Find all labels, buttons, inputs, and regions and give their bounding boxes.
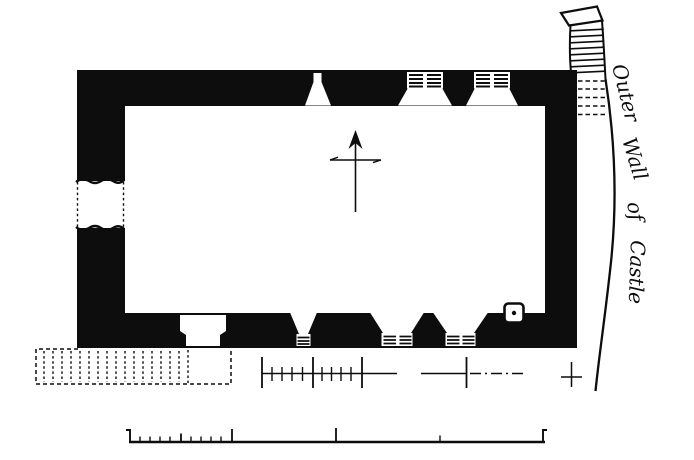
castle-wall-curve (596, 79, 615, 391)
survey-dimension-line (262, 357, 582, 388)
scale-bar-right-end (543, 430, 547, 442)
small-wall-recess (505, 304, 524, 323)
survey-cross-mark (561, 362, 582, 387)
scale-bar-major-ticks (181, 428, 336, 442)
left-wall-breach (75, 179, 126, 230)
label-word-outer: Outer (607, 61, 645, 125)
wall-band-left-edge (570, 26, 572, 78)
plan-canvas: Outer Wall of Castle (0, 0, 694, 460)
building-walls (77, 70, 577, 348)
north-arrow (330, 130, 381, 212)
ruined-annex (36, 349, 231, 384)
annex-hatching (44, 351, 179, 382)
scale-bar-left-end (126, 430, 130, 442)
label-word-wall: Wall (617, 134, 653, 183)
wall-band-dashed-coursing (578, 81, 605, 115)
label-word-of: of (622, 200, 650, 227)
bottom-wall-doorway (180, 315, 226, 346)
window-splay (466, 88, 518, 106)
recess-drain-dot (512, 311, 516, 315)
wall-cap-stone (561, 7, 603, 26)
doorway-opening (180, 315, 226, 346)
scale-bar (126, 428, 547, 442)
wall-band-coursing (570, 29, 605, 73)
breach-opening (75, 181, 126, 228)
wall-mass (77, 70, 577, 348)
label-word-castle: Castle (624, 240, 650, 305)
castle-chapel-plan: Outer Wall of Castle (0, 0, 694, 460)
